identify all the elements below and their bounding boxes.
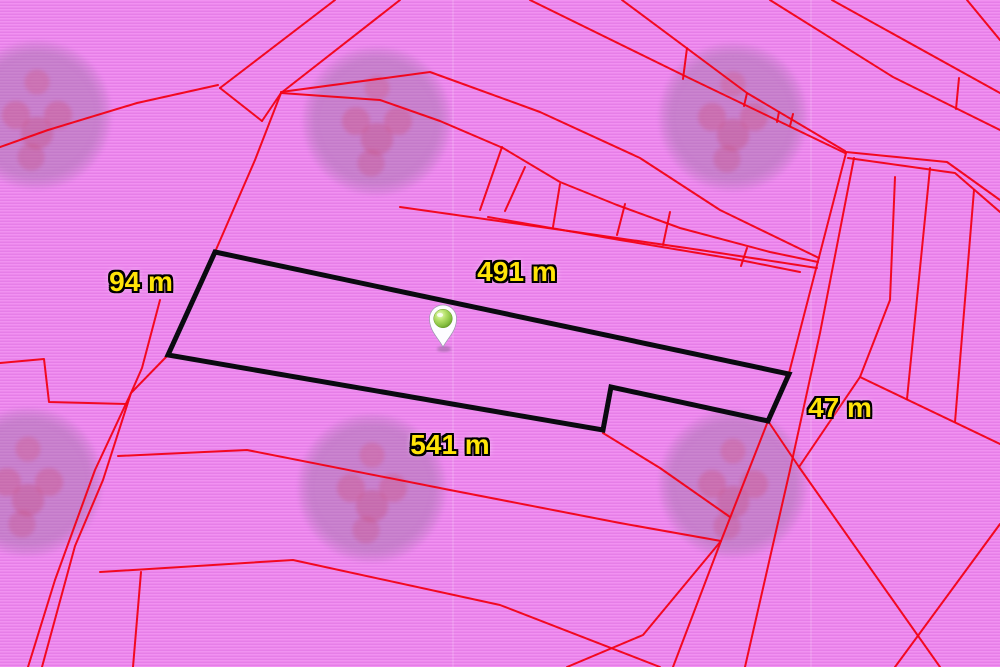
location-pin-icon[interactable]: [430, 305, 457, 352]
parcel-boundary-lines: [0, 0, 1000, 667]
red-boundary-line: [28, 300, 160, 667]
red-boundary-line: [220, 0, 335, 88]
red-boundary-line: [860, 377, 1000, 444]
red-boundary-line: [42, 93, 281, 667]
red-boundary-line: [480, 147, 502, 210]
red-boundary-line: [603, 433, 730, 517]
pin-shadow: [437, 346, 451, 352]
red-boundary-line: [956, 78, 959, 109]
pin-gloss: [437, 313, 443, 317]
red-boundary-line: [262, 0, 400, 121]
distance-label-west: 94 m: [109, 266, 173, 298]
cadastral-map[interactable]: 94 m 491 m 541 m 47 m: [0, 0, 1000, 667]
map-canvas: [0, 0, 1000, 667]
red-boundary-line: [683, 48, 687, 79]
red-boundary-line: [848, 158, 1000, 212]
red-boundary-line: [967, 0, 1000, 40]
red-boundary-line: [100, 560, 660, 667]
red-boundary-line: [0, 85, 218, 147]
red-boundary-line: [0, 359, 127, 404]
red-boundary-line: [133, 572, 141, 667]
red-boundary-line: [955, 190, 974, 422]
red-boundary-line: [118, 450, 721, 541]
distance-label-south: 541 m: [410, 429, 489, 461]
red-boundary-line: [281, 93, 818, 262]
red-boundary-line: [663, 212, 670, 245]
red-boundary-line: [799, 467, 940, 667]
red-boundary-line: [553, 184, 560, 227]
pin-ball: [434, 309, 453, 328]
distance-label-north: 491 m: [477, 256, 556, 288]
red-boundary-line: [220, 88, 262, 121]
red-boundary-line: [770, 0, 1000, 130]
distance-label-east: 47 m: [808, 392, 872, 424]
red-boundary-line: [505, 167, 525, 211]
red-boundary-line: [622, 0, 845, 151]
red-boundary-line: [895, 524, 1000, 667]
red-boundary-line: [617, 204, 625, 235]
red-boundary-line: [281, 72, 819, 258]
red-boundary-line: [907, 168, 930, 399]
red-boundary-line: [832, 0, 1000, 93]
red-boundary-line: [768, 421, 799, 467]
